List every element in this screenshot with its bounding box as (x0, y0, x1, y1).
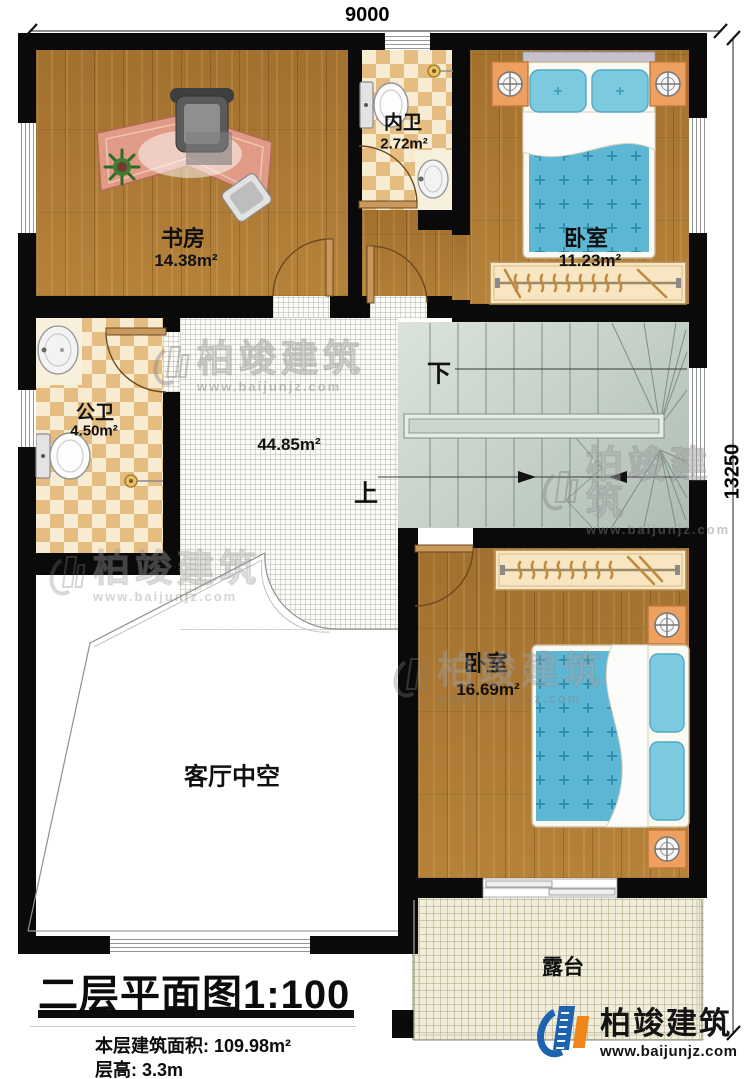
wall-corridor-b (427, 296, 452, 318)
bedroom-bottom-label: 卧室 (464, 646, 508, 678)
corridor-door-threshold (370, 296, 427, 318)
wall-top (18, 33, 707, 50)
inner-bath-label: 内卫 (384, 108, 422, 135)
wall-study-right (348, 33, 362, 296)
wall-bedroombottom-bottom-b (617, 878, 707, 898)
title-underline-bar (38, 1010, 354, 1018)
study-door-threshold (273, 296, 330, 318)
bedroom-bottom-floor (418, 548, 689, 878)
wall-publicbath-right-a (163, 318, 180, 332)
public-bath-label: 公卫 (76, 398, 114, 425)
bedroom-top-area: 11.23m² (559, 251, 621, 271)
wall-bedroombottom-top (473, 528, 689, 548)
floor-height-info: 层高: 3.3m (95, 1056, 183, 1079)
window-bottom-void (110, 936, 310, 954)
wall-publicbath-bottom (18, 553, 180, 575)
brand-logo-icon (538, 1000, 594, 1068)
wall-terrace-pier (392, 1010, 414, 1038)
window-top-innerbath (385, 33, 430, 50)
wall-bedroombottom-bottom-a (398, 878, 483, 898)
title-underline-thin (30, 1026, 356, 1027)
floor-plan-canvas: 书房 14.38m² 内卫 2.72m² 卧室 11.23m² 公卫 4.50m… (0, 0, 750, 1079)
dimension-right: 13250 (722, 442, 745, 502)
window-left-publicbath (18, 390, 36, 447)
study-area: 14.38m² (154, 251, 217, 271)
public-bath-door-threshold (163, 332, 180, 392)
brand-name: 柏竣建筑 (600, 1008, 737, 1041)
public-bath-area: 4.50m² (70, 423, 118, 440)
wall-mid-band-a (18, 296, 273, 318)
terrace-label: 露台 (542, 951, 584, 981)
sliding-door (483, 879, 617, 897)
window-right-stairs (689, 368, 707, 480)
footer-brand: 柏竣建筑 www.baijunjz.com (538, 1000, 737, 1068)
wall-mid-band-b (330, 296, 362, 318)
living-void-label: 客厅中空 (184, 757, 280, 792)
bedroom-top-label: 卧室 (564, 221, 608, 253)
wall-bedroomtop-left-a (452, 33, 470, 235)
window-left-study (18, 123, 36, 233)
brand-url: www.baijunjz.com (600, 1043, 737, 1060)
wall-bedroomtop-bottom (452, 304, 689, 322)
bedroom-bottom-area: 16.69m² (456, 680, 519, 700)
bedroom-passage-floor (452, 235, 470, 305)
wall-innerbath-a (348, 210, 362, 230)
stairs-down-label: 下 (427, 354, 451, 389)
hall-area: 44.85m² (257, 435, 320, 455)
stairs-up-label: 上 (354, 474, 378, 509)
study-label: 书房 (161, 221, 205, 253)
floor-area-info: 本层建筑面积: 109.98m² (95, 1032, 291, 1058)
wall-publicbath-right-b (163, 392, 180, 575)
inner-bath-area: 2.72m² (380, 136, 428, 153)
window-right-bedroomtop (689, 118, 707, 233)
dimension-top: 9000 (345, 4, 390, 27)
wall-corridor-a (362, 296, 370, 318)
